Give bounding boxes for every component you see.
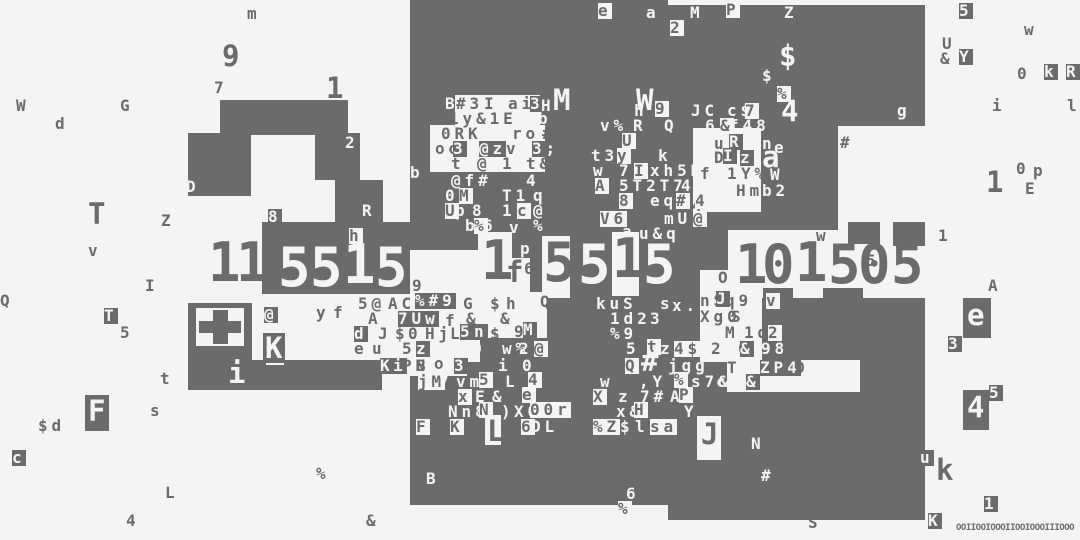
glyph-cell: E xyxy=(1025,181,1039,197)
glyph-cell: & xyxy=(746,374,760,390)
glyph-cell: 1 xyxy=(727,166,741,182)
glyph-cell: d xyxy=(55,116,69,132)
glyph-cell: 5 xyxy=(643,238,676,292)
glyph-cell: 4 xyxy=(967,393,988,422)
glyph-cell: @ xyxy=(534,341,548,357)
glyph-cell: Q xyxy=(540,294,554,310)
glyph-cell: OOIIOOIOOOIIOOIOOOIIIOOO xyxy=(956,524,1074,533)
glyph-cell: %#9 xyxy=(415,293,456,309)
glyph-cell: 3 xyxy=(650,311,664,327)
glyph-cell: M xyxy=(690,5,704,21)
glyph-cell: 0 xyxy=(762,238,795,292)
glyph-cell: 5 xyxy=(460,324,474,340)
glyph-cell: P xyxy=(726,2,740,18)
glyph-cell: K xyxy=(450,419,464,435)
glyph-cell: S xyxy=(808,515,822,531)
glyph-cell: L xyxy=(487,417,508,446)
glyph-cell: 5 xyxy=(626,341,640,357)
glyph-cell: 4$ xyxy=(674,341,701,357)
glyph-cell: v xyxy=(766,293,780,309)
glyph-cell: L xyxy=(165,485,179,501)
glyph-cell: 4 xyxy=(695,193,709,209)
glyph-cell: $d xyxy=(38,418,65,434)
glyph-cell: J xyxy=(701,420,722,449)
glyph-cell: y xyxy=(316,305,330,321)
glyph-cell: u xyxy=(920,450,934,466)
glyph-cell: B xyxy=(426,471,440,487)
glyph-cell: 5 xyxy=(375,241,408,295)
glyph-cell: i xyxy=(992,98,1006,114)
glyph-cell: e xyxy=(967,301,988,330)
glyph-cell: M xyxy=(523,322,537,338)
glyph-cell: t xyxy=(451,156,465,172)
glyph-cell: 5 xyxy=(959,3,973,19)
glyph-cell: Hm xyxy=(736,183,763,199)
glyph-cell: $ xyxy=(762,68,776,84)
glyph-cell: 5 xyxy=(866,253,880,269)
glyph-cell: 0 xyxy=(1017,66,1031,82)
glyph-cell: 5 xyxy=(989,385,1003,401)
glyph-cell: 9 xyxy=(655,101,669,117)
glyph-cell: D xyxy=(186,179,200,195)
glyph-cell: c xyxy=(12,450,26,466)
glyph-cell: W xyxy=(16,98,30,114)
glyph-cell: O xyxy=(472,341,486,357)
glyph-cell: 2 xyxy=(345,135,359,151)
glyph-cell: 1 xyxy=(938,228,952,244)
glyph-cell: @ xyxy=(477,156,491,172)
glyph-cell: M xyxy=(553,86,574,115)
glyph-cell: # xyxy=(840,135,854,151)
glyph-cell: f xyxy=(333,305,347,321)
block-rect xyxy=(220,100,348,135)
glyph-cell: % xyxy=(316,466,330,482)
glyph-cell: P xyxy=(679,387,693,403)
glyph-cell: o xyxy=(434,356,448,372)
glyph-cell: 5 xyxy=(543,236,576,290)
glyph-cell: l xyxy=(1067,98,1080,114)
glyph-cell: 5 xyxy=(828,238,861,292)
glyph-cell: F xyxy=(88,397,109,426)
glyph-cell: a xyxy=(646,5,660,21)
glyph-cell: p xyxy=(1033,163,1047,179)
glyph-cell: 8 xyxy=(268,209,282,225)
glyph-cell: %Z xyxy=(593,419,620,435)
glyph-cell: K xyxy=(265,334,286,363)
glyph-cell: t xyxy=(160,371,174,387)
glyph-cell: 1 xyxy=(986,168,1007,197)
glyph-cell: n xyxy=(474,324,488,340)
glyph-cell: u xyxy=(372,341,386,357)
glyph-cell: 5 xyxy=(479,372,493,388)
glyph-cell: 1 xyxy=(502,156,516,172)
glyph-cell: c xyxy=(517,203,531,219)
glyph-cell: 5 xyxy=(891,238,924,292)
glyph-cell: & xyxy=(940,51,954,67)
glyph-cell: i xyxy=(228,359,249,388)
glyph-cell: 7 xyxy=(439,374,453,390)
glyph-cell: 1 xyxy=(612,232,645,286)
glyph-cell: 1 xyxy=(502,203,516,219)
block-rect xyxy=(823,288,863,352)
glyph-cell: L xyxy=(505,374,519,390)
glyph-cell: sa xyxy=(650,419,677,435)
glyph-cell: m xyxy=(247,6,261,22)
glyph-cell: t& xyxy=(526,156,553,172)
glyph-cell: @ xyxy=(264,307,278,323)
glyph-cell: Y xyxy=(959,49,973,65)
glyph-cell: Y% xyxy=(741,166,768,182)
glyph-cell: 00r xyxy=(530,402,571,418)
glyph-cell: Q xyxy=(625,358,639,374)
glyph-cell: DL xyxy=(531,419,558,435)
glyph-cell: w xyxy=(1024,22,1038,38)
glyph-cell: A xyxy=(595,178,609,194)
glyph-cell: z xyxy=(416,341,430,357)
glyph-cell: Y xyxy=(684,404,698,420)
glyph-cell: D xyxy=(795,360,809,376)
glyph-cell: O xyxy=(718,270,732,286)
glyph-cell: R xyxy=(1066,64,1080,80)
glyph-cell: f xyxy=(506,258,527,287)
glyph-cell: I xyxy=(723,148,737,164)
glyph-cell: 6 xyxy=(705,118,719,134)
glyph-cell: Q xyxy=(0,293,14,309)
glyph-cell: @ xyxy=(693,211,707,227)
glyph-cell: Z xyxy=(784,5,798,21)
glyph-cell: 8 xyxy=(619,193,633,209)
glyph-cell: v xyxy=(88,243,102,259)
glyph-cell: 7 xyxy=(214,80,228,96)
glyph-cell: 5 xyxy=(310,241,343,295)
glyph-cell: T xyxy=(88,200,109,229)
glyph-cell: s xyxy=(150,403,164,419)
glyph-cell: e xyxy=(598,3,612,19)
glyph-cell: l xyxy=(635,419,649,435)
glyph-cell: G xyxy=(120,98,134,114)
glyph-cell: 2 xyxy=(519,341,533,357)
glyph-cell: $ xyxy=(779,42,800,71)
glyph-cell: 1 xyxy=(326,74,347,103)
glyph-cell: f xyxy=(700,166,714,182)
glyph-cell: 5 xyxy=(578,238,611,292)
block-rect xyxy=(199,321,241,333)
glyph-cell: H xyxy=(634,402,648,418)
glyph-cell: T xyxy=(104,308,118,324)
glyph-cell: Z xyxy=(161,213,175,229)
glyph-cell: 3 xyxy=(948,336,962,352)
glyph-cell: $ xyxy=(620,419,634,435)
glyph-cell: 1 xyxy=(343,238,376,292)
glyph-cell: & xyxy=(740,341,754,357)
ascii-art-canvas: m971WGdTZvIQT5ts$dc%L4&D28Rh@yfbeaMPZ2B#… xyxy=(0,0,1080,540)
glyph-cell: F xyxy=(416,419,430,435)
glyph-cell: A xyxy=(988,278,1002,294)
glyph-cell: I xyxy=(145,278,159,294)
glyph-cell: b xyxy=(410,165,424,181)
glyph-cell: R xyxy=(362,203,376,219)
glyph-cell: X xyxy=(593,389,607,405)
glyph-cell: k xyxy=(1044,64,1058,80)
glyph-cell: 5 xyxy=(402,341,416,357)
glyph-cell: w xyxy=(816,228,830,244)
glyph-cell: c xyxy=(716,374,730,390)
glyph-cell: 5 xyxy=(120,325,134,341)
glyph-cell: K xyxy=(928,513,942,529)
glyph-cell: N xyxy=(751,436,765,452)
glyph-cell: 9 xyxy=(222,42,243,71)
glyph-cell: 1 xyxy=(984,496,998,512)
glyph-cell: # xyxy=(761,468,775,484)
glyph-cell: K xyxy=(380,358,394,374)
glyph-cell: 1 xyxy=(236,236,269,290)
glyph-cell: Q xyxy=(664,118,678,134)
glyph-cell: b2 xyxy=(762,183,789,199)
glyph-cell: % xyxy=(618,501,632,517)
glyph-cell: g xyxy=(897,103,911,119)
glyph-cell: & xyxy=(366,513,380,529)
glyph-cell: e xyxy=(354,341,368,357)
glyph-cell: k xyxy=(936,456,957,485)
glyph-cell: 0 xyxy=(1016,161,1030,177)
glyph-cell: 4 xyxy=(126,513,140,529)
glyph-cell: 5 xyxy=(278,241,311,295)
glyph-cell: 2 xyxy=(670,20,684,36)
glyph-cell: x. xyxy=(672,298,699,314)
glyph-cell: 4 xyxy=(781,97,802,126)
glyph-cell: # xyxy=(676,193,690,209)
glyph-cell: 98 xyxy=(761,341,788,357)
